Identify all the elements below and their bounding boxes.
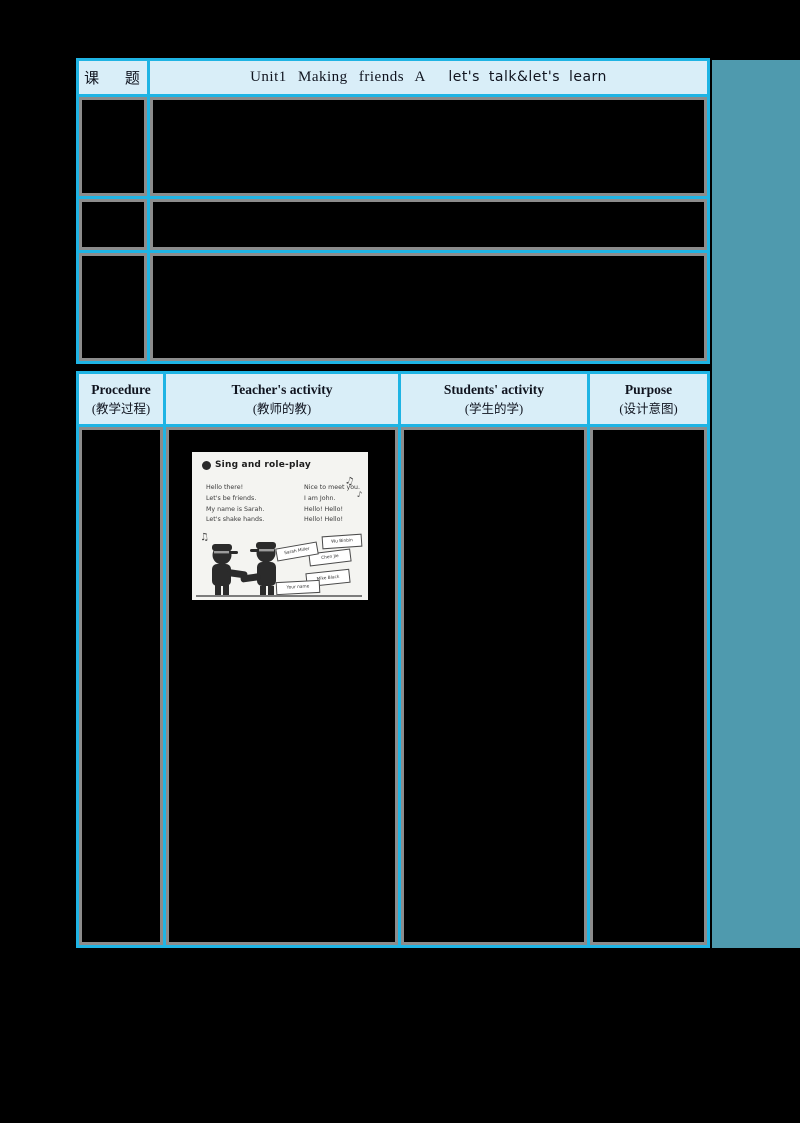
redacted-label-cell <box>79 97 147 196</box>
lyric-line: Hello there! <box>206 483 264 494</box>
lesson-title-row: 课 题 Unit1 Making friends A let's talk&le… <box>79 61 707 94</box>
lyric-line: My name is Sarah. <box>206 505 264 516</box>
lesson-title-main: Unit1 Making friends A <box>250 69 426 85</box>
students-activity-body-cell <box>401 427 587 945</box>
purpose-header-zh: (设计意图) <box>619 400 677 418</box>
name-card: Your name <box>276 580 321 595</box>
lyric-line: I am John. <box>304 494 360 505</box>
purpose-header-cell: Purpose (设计意图) <box>590 374 707 424</box>
lyric-line: Hello! Hello! <box>304 505 360 516</box>
lesson-info-row-1 <box>79 97 707 196</box>
document-page: 课 题 Unit1 Making friends A let's talk&le… <box>0 0 800 1123</box>
procedure-table: Procedure (教学过程) Teacher's activity (教师的… <box>76 371 710 948</box>
lyric-line: Let's be friends. <box>206 494 264 505</box>
page-margin-panel <box>712 60 800 948</box>
lesson-info-row-3 <box>79 253 707 361</box>
procedure-header-row: Procedure (教学过程) Teacher's activity (教师的… <box>79 374 707 424</box>
teacher-activity-header-zh: (教师的教) <box>253 400 311 418</box>
music-note-icon: ♪ <box>356 490 363 500</box>
procedure-header-cell: Procedure (教学过程) <box>79 374 163 424</box>
redacted-content-cell <box>150 253 707 361</box>
students-activity-header-cell: Students' activity (学生的学) <box>401 374 587 424</box>
lyrics-left-column: Hello there! Let's be friends. My name i… <box>206 483 264 526</box>
name-card: Wu Binbin <box>322 534 363 550</box>
purpose-header-en: Purpose <box>625 380 672 400</box>
redacted-content-cell <box>150 199 707 250</box>
procedure-header-en: Procedure <box>91 380 150 400</box>
procedure-header-zh: (教学过程) <box>92 400 150 418</box>
students-activity-header-zh: (学生的学) <box>465 400 523 418</box>
textbook-image: Sing and role-play Hello there! Let's be… <box>192 452 368 600</box>
lyric-line: Let's shake hands. <box>206 515 264 526</box>
redacted-label-cell <box>79 253 147 361</box>
sing-and-roleplay-heading: Sing and role-play <box>202 460 311 470</box>
lesson-info-table: 课 题 Unit1 Making friends A let's talk&le… <box>76 58 710 364</box>
lesson-title: Unit1 Making friends A let's talk&let's … <box>250 69 607 86</box>
redacted-content-cell <box>150 97 707 196</box>
lesson-title-cell: Unit1 Making friends A let's talk&let's … <box>150 61 707 94</box>
topic-header-cell: 课 题 <box>79 61 147 94</box>
lesson-title-sub: let's talk&let's learn <box>448 69 607 85</box>
teacher-activity-header-cell: Teacher's activity (教师的教) <box>166 374 398 424</box>
lesson-info-row-2 <box>79 199 707 250</box>
purpose-body-cell <box>590 427 707 945</box>
lyric-line: Hello! Hello! <box>304 515 360 526</box>
bullet-circle-icon <box>202 461 211 470</box>
students-activity-header-en: Students' activity <box>444 380 544 400</box>
sing-and-roleplay-title: Sing and role-play <box>215 460 311 470</box>
lyrics-right-column: Nice to meet you. I am John. Hello! Hell… <box>304 483 360 526</box>
procedure-body-row <box>79 427 707 945</box>
teacher-activity-header-en: Teacher's activity <box>231 380 332 400</box>
topic-label: 课 题 <box>84 67 142 88</box>
procedure-body-cell <box>79 427 163 945</box>
redacted-label-cell <box>79 199 147 250</box>
